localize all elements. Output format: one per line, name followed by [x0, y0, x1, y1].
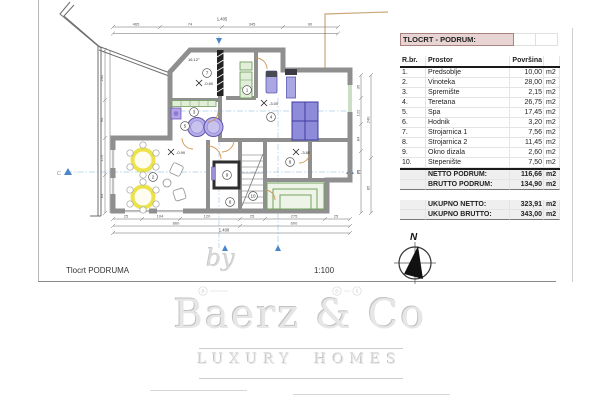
table-row: 1.Predsoblje10,00m2 — [400, 68, 560, 78]
total-row-brutto: UKUPNO BRUTTO: 343,00 m2 — [400, 210, 560, 220]
table-spacer-row — [400, 190, 560, 200]
table-row: 9.Okno dizala2,60m2 — [400, 148, 560, 158]
table-row: 10.Stepenište7,50m2 — [400, 158, 560, 168]
wall-angle-label: 16.12° — [188, 57, 200, 62]
svg-text:25: 25 — [124, 214, 129, 219]
dimension-labels-right: 35 122 84 80 240 85 — [356, 84, 371, 190]
elevator-door — [212, 167, 216, 180]
svg-text:1: 1 — [246, 88, 249, 93]
svg-text:120: 120 — [204, 214, 211, 219]
svg-text:-3.80: -3.80 — [301, 150, 311, 155]
spa-shelf — [172, 101, 216, 107]
svg-text:1.400: 1.400 — [219, 228, 230, 233]
svg-text:275: 275 — [291, 214, 298, 219]
dimension-chain-right — [359, 73, 373, 215]
svg-text:860: 860 — [173, 221, 180, 226]
area-table-title-row: TLOCRT - PODRUM: — [400, 33, 560, 46]
area-table-header-row: R.br. Prostor Površina — [400, 56, 560, 68]
svg-text:84: 84 — [99, 193, 104, 198]
grid-axis-bubbles: B D 5 — [199, 287, 361, 295]
gym-exercise-mat-table — [292, 102, 318, 140]
table-row: 8.Strojarnica 211,45m2 — [400, 138, 560, 148]
gym-weight-bench — [285, 69, 297, 98]
table-row: 4.Teretana26,75m2 — [400, 98, 560, 108]
dimension-labels-top: 465 74 345 90 1.405 — [133, 17, 313, 27]
area-table-empty-cell — [514, 33, 536, 46]
svg-text:176: 176 — [99, 154, 104, 161]
svg-text:9: 9 — [226, 173, 229, 178]
spa-hot-tubs — [188, 118, 224, 137]
table-row: 3.Spremište2,15m2 — [400, 88, 560, 98]
svg-text:2: 2 — [152, 175, 155, 180]
dimension-chain-top — [111, 25, 340, 36]
table-row: 7.Strojarnica 17,56m2 — [400, 128, 560, 138]
svg-text:-0.90: -0.90 — [176, 150, 186, 155]
svg-text:6: 6 — [229, 200, 232, 205]
dimension-labels-bottom: 25 104 120 25 275 25 860 600 1.400 — [124, 214, 339, 233]
col-header-name: Prostor — [426, 56, 510, 66]
svg-text:B: B — [201, 289, 204, 294]
svg-text:35: 35 — [356, 84, 361, 89]
plan-title: Tlocrt PODRUMA — [66, 266, 129, 275]
svg-text:465: 465 — [133, 22, 140, 27]
vinoteka-lounge-chairs — [163, 162, 186, 201]
table-row: 2.Vinoteka28,00m2 — [400, 78, 560, 88]
north-needle — [404, 246, 423, 279]
compass-rose: N — [394, 232, 436, 284]
subtotal-row-brutto: BRUTTO PODRUM: 134,90 m2 — [400, 180, 560, 190]
area-table: TLOCRT - PODRUM: R.br. Prostor Površina … — [400, 33, 560, 220]
subtotal-row-netto: NETTO PODRUM: 116,66 m2 — [400, 168, 560, 180]
upper-floor-projection-line — [325, 12, 388, 70]
svg-text:C: C — [57, 171, 61, 177]
svg-text:240: 240 — [366, 116, 371, 123]
svg-text:1.405: 1.405 — [217, 17, 228, 22]
area-table-empty-cell — [536, 33, 558, 46]
svg-text:3: 3 — [193, 110, 196, 115]
exterior-terrace-steps — [267, 183, 324, 209]
svg-text:-3.00: -3.00 — [269, 101, 279, 106]
svg-text:84: 84 — [356, 136, 361, 141]
col-header-num: R.br. — [400, 56, 426, 66]
table-row: 5.Spa17,45m2 — [400, 108, 560, 118]
svg-text:5: 5 — [356, 289, 359, 294]
svg-text:74: 74 — [188, 22, 193, 27]
svg-text:8: 8 — [289, 160, 292, 165]
section-marker-c-left: C — [57, 168, 72, 177]
north-label: N — [410, 232, 418, 243]
dimension-chain-bottom — [111, 217, 352, 235]
floor-plan-sheet: by Baerz & Co LUXURY HOMES C C — [0, 0, 600, 400]
svg-text:85: 85 — [366, 185, 371, 190]
svg-text:-0.60: -0.60 — [204, 81, 214, 86]
plan-scale: 1:100 — [314, 266, 334, 275]
svg-text:104: 104 — [157, 214, 164, 219]
gym-treadmill — [266, 71, 277, 93]
svg-text:235: 235 — [99, 74, 104, 81]
svg-text:600: 600 — [291, 221, 298, 226]
col-header-area: Površina — [510, 56, 544, 66]
svg-text:345: 345 — [249, 22, 256, 27]
hatched-wall — [217, 50, 224, 96]
svg-text:5: 5 — [184, 124, 187, 129]
svg-text:25: 25 — [250, 214, 255, 219]
svg-text:90: 90 — [308, 22, 313, 27]
dimension-chain-left — [103, 48, 110, 215]
svg-text:90: 90 — [99, 117, 104, 122]
svg-text:10: 10 — [250, 194, 256, 199]
total-row-netto: UKUPNO NETTO: 323,91 m2 — [400, 200, 560, 210]
spa-equipment-box — [171, 108, 181, 119]
svg-text:25: 25 — [334, 214, 339, 219]
svg-text:80: 80 — [356, 169, 361, 174]
svg-text:D: D — [335, 289, 339, 294]
svg-text:122: 122 — [356, 109, 361, 116]
svg-text:4: 4 — [270, 115, 273, 120]
table-row: 6.Hodnik3,20m2 — [400, 118, 560, 128]
svg-text:7: 7 — [206, 71, 209, 76]
area-table-title: TLOCRT - PODRUM: — [400, 33, 514, 46]
